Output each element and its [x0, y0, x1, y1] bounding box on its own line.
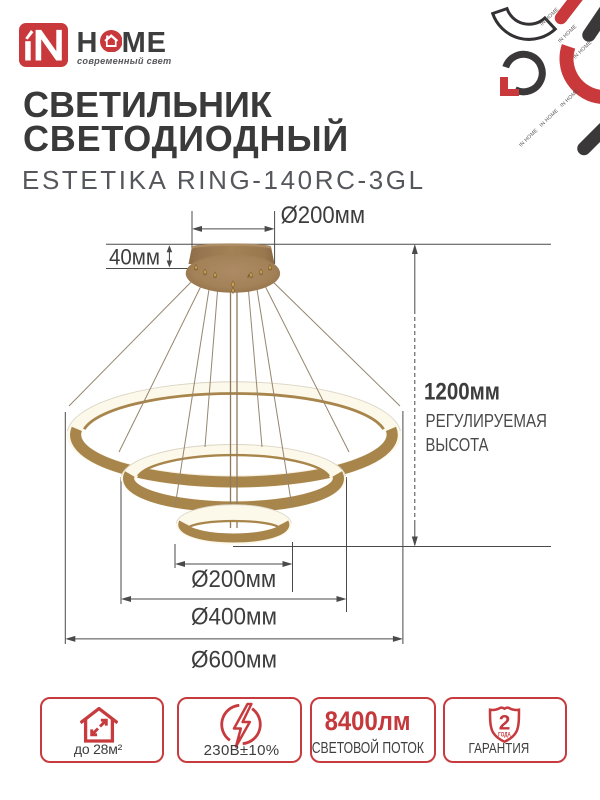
- svg-text:1200мм: 1200мм: [424, 379, 500, 406]
- svg-text:Ø600мм: Ø600мм: [191, 647, 277, 674]
- svg-text:Ø200мм: Ø200мм: [281, 202, 366, 229]
- svg-text:ГОДА: ГОДА: [498, 731, 511, 738]
- svg-text:ВЫСОТА: ВЫСОТА: [426, 434, 490, 455]
- svg-text:IN HOME: IN HOME: [557, 23, 578, 44]
- svg-text:40мм: 40мм: [109, 245, 160, 270]
- svg-text:IN HOME IN HOME IN HOME: IN HOME IN HOME IN HOME: [518, 88, 580, 149]
- svg-text:Ø200мм: Ø200мм: [191, 566, 276, 593]
- svg-text:РЕГУЛИРУЕМАЯ: РЕГУЛИРУЕМАЯ: [426, 410, 548, 431]
- svg-text:IN HOME: IN HOME: [572, 39, 593, 60]
- svg-text:Ø400мм: Ø400мм: [191, 604, 277, 631]
